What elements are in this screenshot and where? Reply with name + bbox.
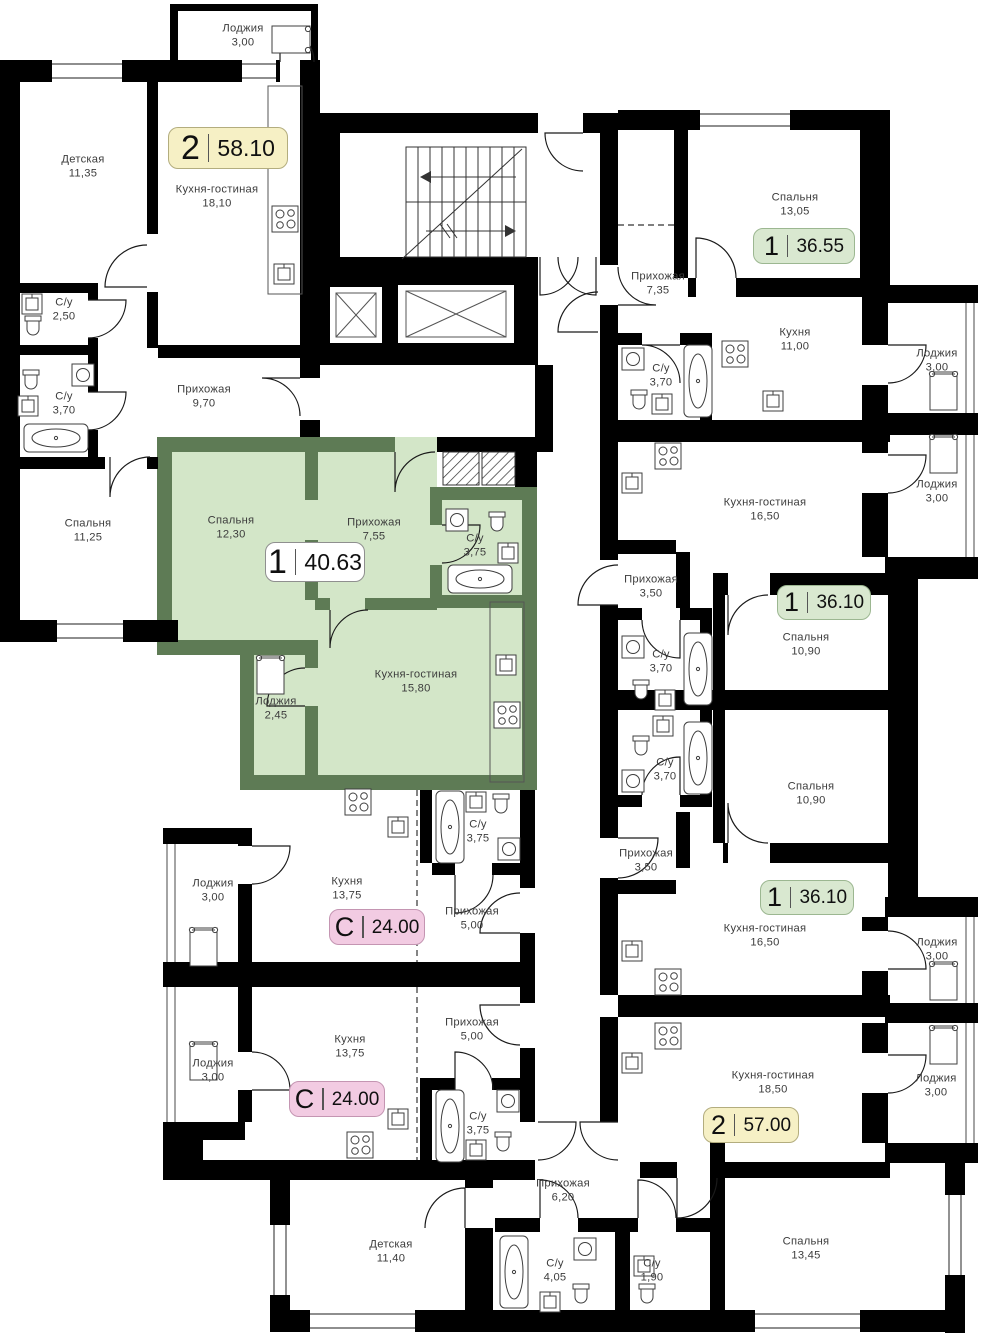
room-name: Прихожая: [624, 574, 678, 586]
badge-area-value: 57.00: [743, 1116, 791, 1135]
room-area: 18,50: [732, 1083, 815, 1097]
room-area: 13,75: [331, 889, 362, 903]
room-area: 3,00: [916, 950, 957, 964]
room-name: Лоджия: [192, 878, 233, 890]
room-name: С/у: [469, 819, 487, 831]
room-area: 3,00: [192, 1071, 233, 1085]
room-name: Кухня-гостиная: [176, 184, 259, 196]
room-label-2: Кухня-гостиная18,10: [176, 184, 259, 211]
room-area: 5,00: [445, 919, 499, 933]
room-label-22: С/у3,70: [654, 757, 677, 784]
room-name: Прихожая: [347, 517, 401, 529]
room-area: 7,35: [631, 284, 685, 298]
room-name: Лоджия: [916, 479, 957, 491]
room-label-24: Прихожая3,50: [619, 848, 673, 875]
room-area: 3,00: [916, 492, 957, 506]
room-label-37: Прихожая6,20: [536, 1178, 590, 1205]
room-name: Кухня-гостиная: [724, 497, 807, 509]
room-name: Спальня: [783, 1236, 830, 1248]
room-label-20: Спальня10,90: [783, 632, 830, 659]
room-label-29: Прихожая5,00: [445, 906, 499, 933]
room-name: Лоджия: [916, 937, 957, 949]
room-label-4: С/у3,70: [53, 391, 76, 418]
room-label-27: Кухня13,75: [331, 876, 362, 903]
room-label-8: Прихожая7,55: [347, 517, 401, 544]
room-label-39: С/у4,05: [544, 1258, 567, 1285]
room-area: 9,70: [177, 397, 231, 411]
room-label-5: Прихожая9,70: [177, 384, 231, 411]
room-label-13: Прихожая7,35: [631, 271, 685, 298]
badge-area-value: 36.10: [799, 888, 847, 907]
room-name: Кухня-гостиная: [724, 923, 807, 935]
room-label-26: Лоджия3,00: [916, 937, 957, 964]
room-name: Кухня: [334, 1034, 365, 1046]
room-area: 3,70: [650, 376, 673, 390]
badge-area-value: 24.00: [372, 918, 420, 937]
room-label-33: С/у3,75: [467, 1111, 490, 1138]
room-name: С/у: [469, 1111, 487, 1123]
badge-divider: [295, 549, 297, 575]
room-name: С/у: [546, 1258, 564, 1270]
room-area: 13,05: [772, 205, 819, 219]
room-label-10: Кухня-гостиная15,80: [375, 669, 458, 696]
badge-room-count: 1: [784, 589, 799, 616]
badge-room-count: 1: [268, 545, 287, 579]
room-name: С/у: [652, 649, 670, 661]
apartment-badge-58.10[interactable]: 258.10: [168, 127, 288, 169]
room-name: Лоджия: [192, 1058, 233, 1070]
room-name: Лоджия: [255, 696, 296, 708]
room-area: 1,90: [641, 1271, 664, 1285]
apartment-badge-40.63[interactable]: 140.63: [265, 542, 365, 582]
room-area: 3,00: [916, 361, 957, 375]
room-label-21: Лоджия3,00: [916, 479, 957, 506]
room-name: Лоджия: [915, 1073, 956, 1085]
room-area: 3,00: [915, 1086, 956, 1100]
room-label-32: Кухня13,75: [334, 1034, 365, 1061]
room-area: 16,50: [724, 936, 807, 950]
floor-plan: Лоджия3,00Детская11,35Кухня-гостиная18,1…: [0, 0, 1000, 1339]
room-area: 3,70: [53, 404, 76, 418]
room-label-12: Спальня13,05: [772, 192, 819, 219]
room-label-19: С/у3,70: [650, 649, 673, 676]
room-area: 11,00: [779, 340, 810, 354]
room-label-6: Спальня11,25: [65, 518, 112, 545]
room-label-3: С/у2,50: [53, 297, 76, 324]
apartment-badge-36.10[interactable]: 136.10: [777, 585, 871, 620]
badge-area-value: 58.10: [217, 137, 275, 160]
apartment-badge-57.00[interactable]: 257.00: [703, 1107, 799, 1143]
apartment-badge-24.00[interactable]: С24.00: [289, 1081, 385, 1117]
room-label-14: Кухня11,00: [779, 327, 810, 354]
badge-area-value: 40.63: [304, 551, 362, 574]
room-label-16: Лоджия3,00: [916, 348, 957, 375]
room-name: Спальня: [65, 518, 112, 530]
room-label-25: Кухня-гостиная16,50: [724, 923, 807, 950]
room-area: 3,75: [467, 1124, 490, 1138]
room-area: 3,75: [467, 832, 490, 846]
room-name: С/у: [643, 1258, 661, 1270]
room-name: С/у: [466, 533, 484, 545]
room-name: Спальня: [788, 781, 835, 793]
room-name: С/у: [652, 363, 670, 375]
vent-shafts: [443, 452, 515, 485]
room-label-9: С/у3,75: [464, 533, 487, 560]
badge-room-count: С: [295, 1086, 315, 1113]
room-area: 4,05: [544, 1271, 567, 1285]
room-area: 3,50: [619, 861, 673, 875]
room-label-0: Лоджия3,00: [222, 23, 263, 50]
room-label-40: С/у1,90: [641, 1258, 664, 1285]
room-area: 18,10: [176, 197, 259, 211]
room-label-11: Лоджия2,45: [255, 696, 296, 723]
badge-area-value: 24.00: [332, 1090, 380, 1109]
room-area: 13,45: [783, 1249, 830, 1263]
badge-divider: [362, 916, 364, 938]
room-label-34: Лоджия3,00: [192, 1058, 233, 1085]
room-area: 11,25: [65, 531, 112, 545]
room-name: Прихожая: [445, 1017, 499, 1029]
room-name: Лоджия: [222, 23, 263, 35]
room-name: Детская: [369, 1239, 412, 1251]
badge-divider: [807, 592, 809, 613]
room-name: Прихожая: [619, 848, 673, 860]
room-label-18: Прихожая3,50: [624, 574, 678, 601]
room-label-7: Спальня12,30: [208, 515, 255, 542]
room-area: 3,00: [222, 36, 263, 50]
room-area: 10,90: [783, 645, 830, 659]
room-area: 11,40: [369, 1252, 412, 1266]
badge-area-value: 36.55: [796, 237, 844, 256]
room-area: 13,75: [334, 1047, 365, 1061]
room-label-38: Детская11,40: [369, 1239, 412, 1266]
room-name: Детская: [61, 154, 104, 166]
apartment-badge-36.10[interactable]: 136.10: [760, 880, 854, 915]
room-name: Кухня-гостиная: [375, 669, 458, 681]
room-area: 3,50: [624, 587, 678, 601]
room-area: 2,45: [255, 709, 296, 723]
room-label-35: Кухня-гостиная18,50: [732, 1070, 815, 1097]
badge-divider: [787, 235, 789, 257]
room-label-41: Спальня13,45: [783, 1236, 830, 1263]
room-label-15: С/у3,70: [650, 363, 673, 390]
apartment-badge-36.55[interactable]: 136.55: [753, 228, 855, 264]
badge-divider: [790, 887, 792, 908]
floor-plan-drawing: [0, 0, 1000, 1339]
room-area: 2,50: [53, 310, 76, 324]
badge-room-count: 2: [711, 1112, 726, 1139]
room-name: Прихожая: [445, 906, 499, 918]
room-name: Прихожая: [177, 384, 231, 396]
room-name: Лоджия: [916, 348, 957, 360]
badge-divider: [208, 134, 210, 162]
badge-room-count: 2: [181, 131, 200, 165]
room-name: Кухня: [331, 876, 362, 888]
room-label-31: Прихожая5,00: [445, 1017, 499, 1044]
room-name: С/у: [55, 297, 73, 309]
badge-divider: [322, 1088, 324, 1110]
badge-divider: [734, 1114, 736, 1136]
room-name: Спальня: [208, 515, 255, 527]
badge-room-count: 1: [764, 233, 779, 260]
badge-room-count: С: [335, 914, 355, 941]
room-area: 16,50: [724, 510, 807, 524]
staircase: [402, 147, 526, 259]
room-label-1: Детская11,35: [61, 154, 104, 181]
room-label-28: С/у3,75: [467, 819, 490, 846]
room-area: 3,70: [650, 662, 673, 676]
room-area: 15,80: [375, 682, 458, 696]
room-label-36: Лоджия3,00: [915, 1073, 956, 1100]
room-area: 10,90: [788, 794, 835, 808]
room-area: 3,00: [192, 891, 233, 905]
room-name: С/у: [55, 391, 73, 403]
room-area: 6,20: [536, 1191, 590, 1205]
room-label-17: Кухня-гостиная16,50: [724, 497, 807, 524]
room-name: Кухня-гостиная: [732, 1070, 815, 1082]
room-area: 5,00: [445, 1030, 499, 1044]
badge-room-count: 1: [767, 884, 782, 911]
room-area: 12,30: [208, 528, 255, 542]
room-label-23: Спальня10,90: [788, 781, 835, 808]
room-area: 3,70: [654, 770, 677, 784]
room-area: 3,75: [464, 546, 487, 560]
room-name: Прихожая: [536, 1178, 590, 1190]
apartment-badge-24.00[interactable]: С24.00: [329, 909, 425, 945]
elevators: [330, 285, 514, 343]
room-name: Спальня: [783, 632, 830, 644]
badge-area-value: 36.10: [816, 593, 864, 612]
room-area: 11,35: [61, 167, 104, 181]
room-name: Прихожая: [631, 271, 685, 283]
room-label-30: Лоджия3,00: [192, 878, 233, 905]
room-name: Спальня: [772, 192, 819, 204]
room-name: Кухня: [779, 327, 810, 339]
room-name: С/у: [656, 757, 674, 769]
